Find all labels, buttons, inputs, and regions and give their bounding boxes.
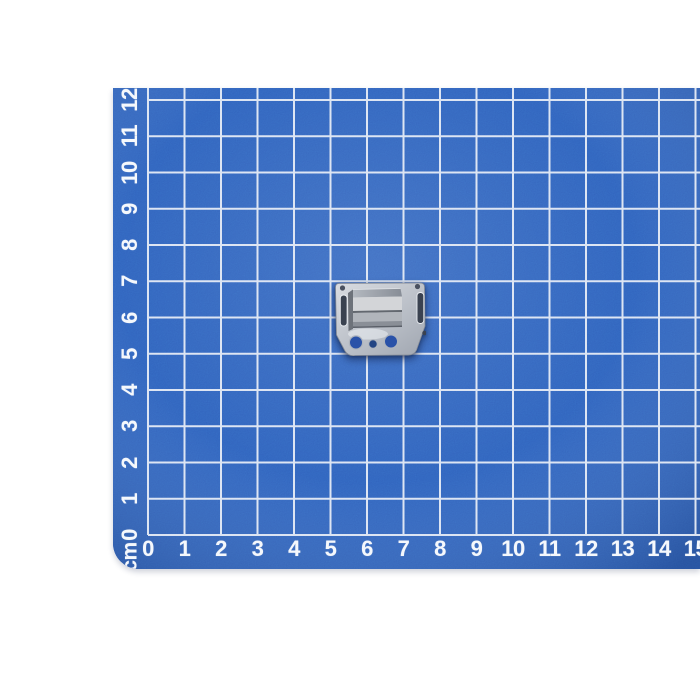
product-photo-stage: 01234567891011121314150123456789101112cm — [0, 0, 700, 700]
bottom-ruler-label: 1 — [179, 538, 191, 560]
clip-hole — [369, 340, 378, 349]
bottom-ruler-label: 11 — [538, 538, 560, 560]
left-ruler-label: 8 — [119, 239, 141, 251]
left-ruler-label: 3 — [119, 420, 141, 432]
left-ruler-label: 2 — [119, 457, 141, 469]
bottom-ruler-label: 10 — [501, 538, 524, 560]
clip-corner-hole — [340, 285, 345, 290]
metal-clip-object — [334, 280, 426, 358]
left-ruler-label: 12 — [119, 88, 141, 111]
bottom-ruler-label: 6 — [361, 538, 373, 560]
clip-slot — [340, 295, 347, 326]
bottom-ruler-label: 13 — [611, 538, 634, 560]
bottom-ruler-label: 4 — [288, 538, 300, 560]
bottom-ruler-label: 5 — [325, 538, 337, 560]
clip-corner-hole — [415, 284, 420, 289]
left-ruler-label: 7 — [119, 275, 141, 287]
clip-block — [348, 289, 402, 332]
left-ruler-label: 9 — [119, 203, 141, 215]
bottom-ruler-label: 12 — [574, 538, 597, 560]
clip-hole — [384, 335, 397, 348]
bottom-ruler-label: 8 — [434, 538, 446, 560]
clip-slot — [417, 293, 424, 324]
left-ruler-label: 0 — [119, 529, 141, 541]
bottom-ruler-label: 0 — [142, 538, 154, 560]
unit-label: cm — [120, 542, 141, 569]
bottom-ruler-label: 9 — [471, 538, 483, 560]
left-ruler-label: 5 — [119, 348, 141, 360]
bottom-ruler-label: 7 — [398, 538, 410, 560]
left-ruler-label: 1 — [119, 493, 141, 505]
left-ruler-label: 4 — [119, 384, 141, 396]
bottom-ruler-label: 15 — [684, 538, 700, 560]
clip-hole — [349, 336, 362, 349]
left-ruler-label: 6 — [119, 312, 141, 324]
bottom-ruler-label: 14 — [647, 538, 670, 560]
left-ruler-label: 11 — [119, 125, 141, 147]
bottom-ruler-label: 3 — [252, 538, 264, 560]
bottom-ruler-label: 2 — [215, 538, 227, 560]
left-ruler-label: 10 — [119, 161, 141, 184]
